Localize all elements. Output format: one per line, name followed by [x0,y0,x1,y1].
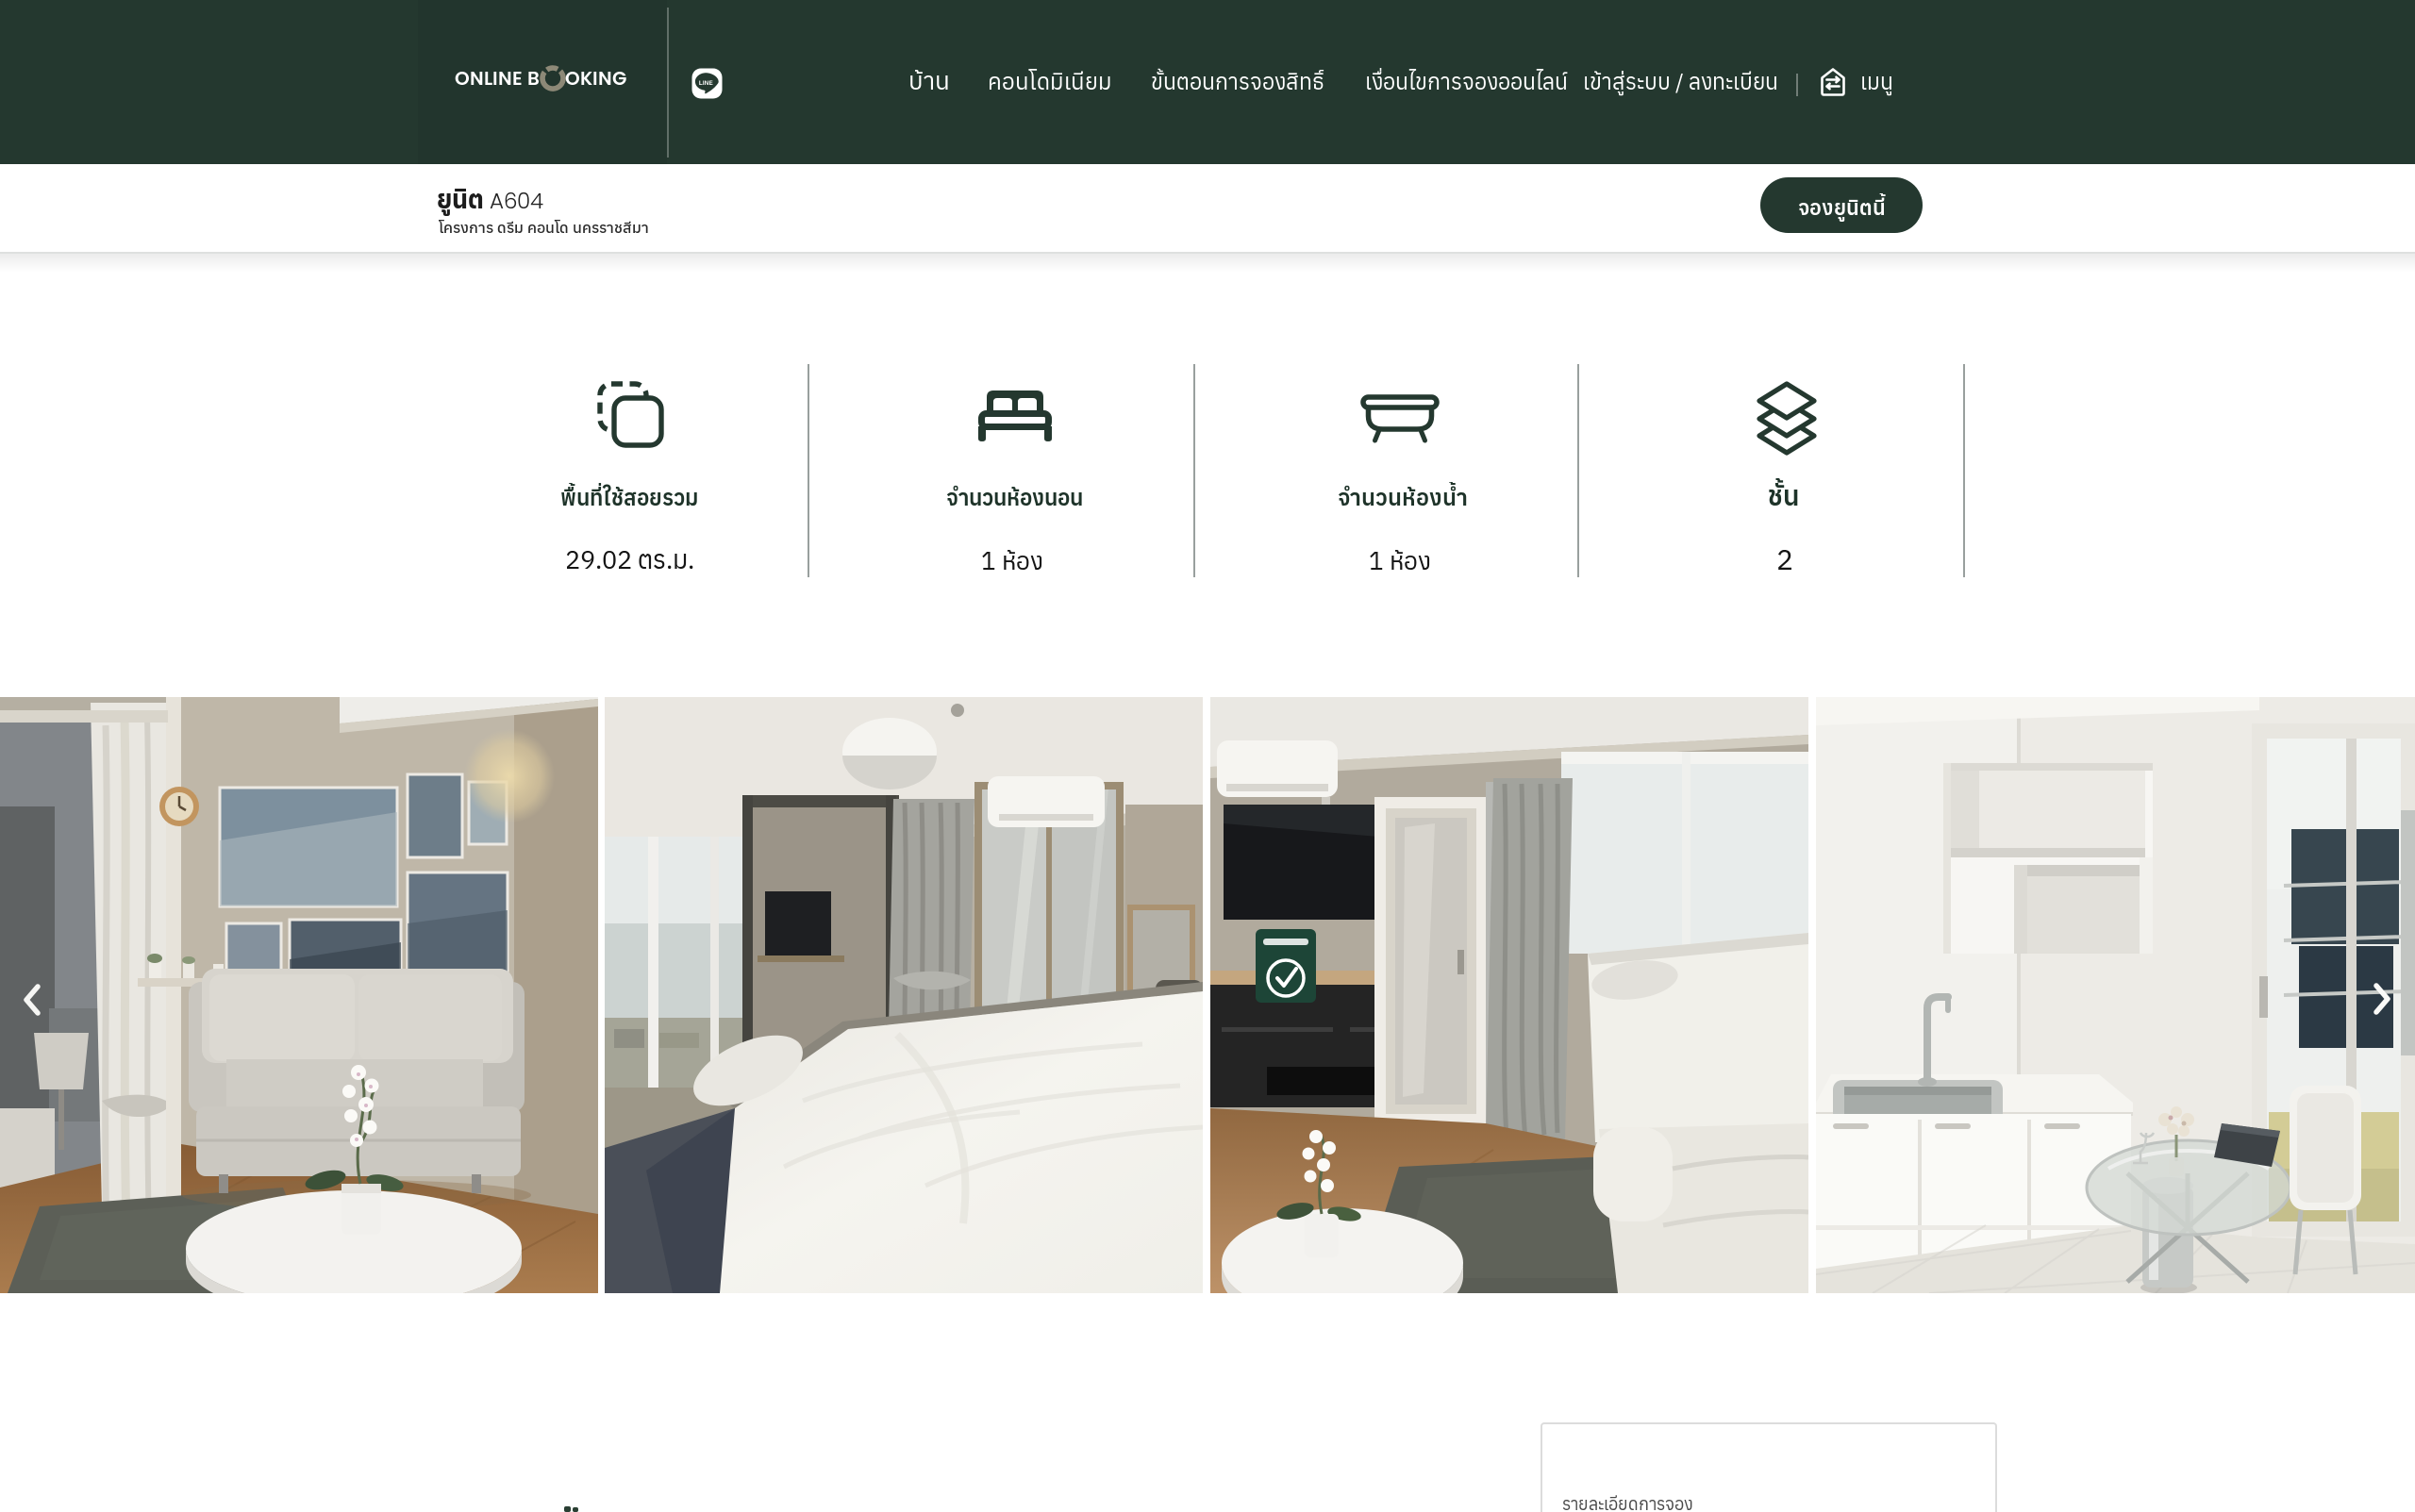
svg-text:LINE: LINE [699,80,713,87]
